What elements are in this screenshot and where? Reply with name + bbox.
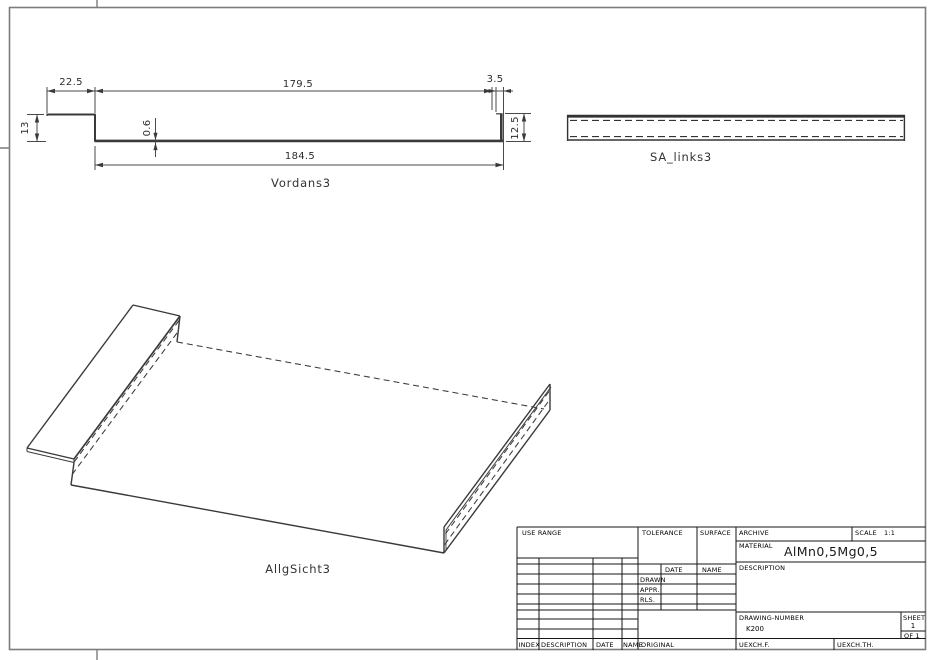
page-border xyxy=(0,0,926,660)
uexchth-label: UEXCH.TH. xyxy=(837,641,874,649)
dim-overall-length: 184.5 xyxy=(270,151,330,162)
drawing-sheet: 22.5 179.5 3.5 184.5 13 0.6 12.5 Vordans… xyxy=(0,0,940,660)
archive-label: ARCHIVE xyxy=(739,529,769,537)
side-view xyxy=(567,115,905,141)
dim-lip-height: 12.5 xyxy=(509,113,521,143)
dim-flange-width: 22.5 xyxy=(48,77,94,88)
name-header: NAME xyxy=(702,566,722,574)
surface-label: SURFACE xyxy=(700,529,731,537)
side-view-label: SA_links3 xyxy=(639,150,723,164)
sheet-label: SHEET xyxy=(903,614,925,622)
scale-value: 1:1 xyxy=(884,529,895,537)
front-view-label: Vordans3 xyxy=(259,176,343,190)
material-value: AlMn0,5Mg0,5 xyxy=(736,544,926,559)
description2-label: DESCRIPTION xyxy=(541,641,587,649)
scale-label: SCALE xyxy=(855,529,877,537)
rls-label: RLS. xyxy=(640,596,655,604)
dim-web-inner-length: 179.5 xyxy=(268,79,328,90)
date-header: DATE xyxy=(665,566,683,574)
of-label: OF 1 xyxy=(904,632,920,640)
dim-sheet-thickness: 0.6 xyxy=(141,115,153,141)
tolerance-label: TOLERANCE xyxy=(642,529,683,537)
name2-label: NAME xyxy=(623,641,643,649)
drawn-label: DRAWN xyxy=(640,576,666,584)
dim-flange-height: 13 xyxy=(19,115,31,141)
original-label: ORIGINAL xyxy=(641,641,674,649)
iso-view xyxy=(27,305,551,553)
sheet-value: 1 xyxy=(901,622,925,630)
appr-label: APPR. xyxy=(640,586,660,594)
dim-lip-bend-width: 3.5 xyxy=(478,74,512,85)
uexchf-label: UEXCH.F. xyxy=(739,641,770,649)
use-range-label: USE RANGE xyxy=(522,529,562,537)
centering-ticks xyxy=(0,0,97,660)
drawing-number-label: DRAWING-NUMBER xyxy=(739,614,804,622)
drawing-linework xyxy=(0,0,940,660)
index-label: INDEX xyxy=(519,641,540,649)
description-label: DESCRIPTION xyxy=(739,564,785,572)
drawing-number-value: K200 xyxy=(746,625,764,633)
iso-view-label: AllgSicht3 xyxy=(254,562,342,576)
date2-label: DATE xyxy=(596,641,614,649)
bend-lines xyxy=(71,321,549,546)
